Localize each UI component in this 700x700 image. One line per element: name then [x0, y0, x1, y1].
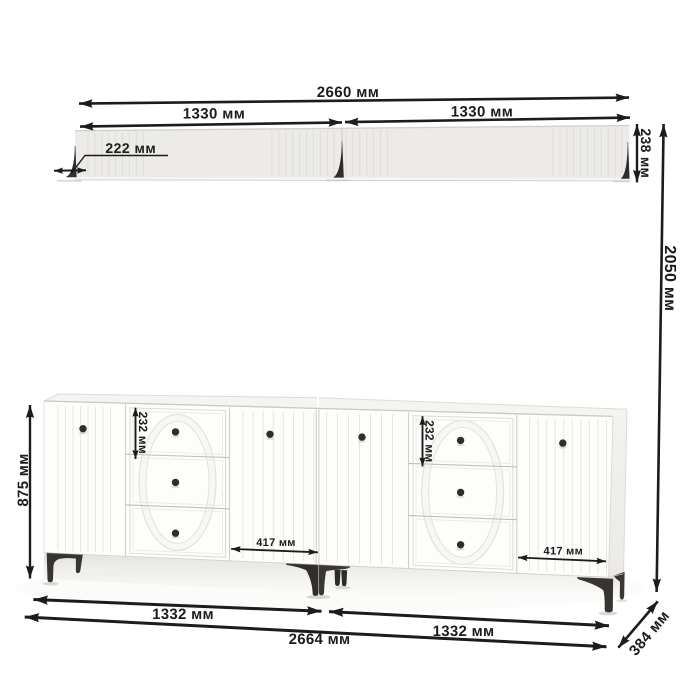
svg-text:232 мм: 232 мм	[136, 412, 150, 454]
svg-text:875 мм: 875 мм	[15, 453, 32, 506]
svg-text:2664 мм: 2664 мм	[289, 631, 351, 648]
svg-text:417 мм: 417 мм	[544, 545, 583, 557]
svg-text:222 мм: 222 мм	[105, 140, 156, 156]
svg-text:2050 мм: 2050 мм	[661, 245, 678, 311]
svg-text:1330 мм: 1330 мм	[183, 106, 246, 123]
svg-text:1332 мм: 1332 мм	[152, 606, 214, 623]
svg-text:1330 мм: 1330 мм	[451, 104, 514, 121]
svg-text:232 мм: 232 мм	[422, 420, 436, 462]
svg-text:238 мм: 238 мм	[638, 128, 654, 178]
svg-text:417 мм: 417 мм	[256, 537, 295, 549]
svg-text:2660 мм: 2660 мм	[317, 84, 380, 101]
